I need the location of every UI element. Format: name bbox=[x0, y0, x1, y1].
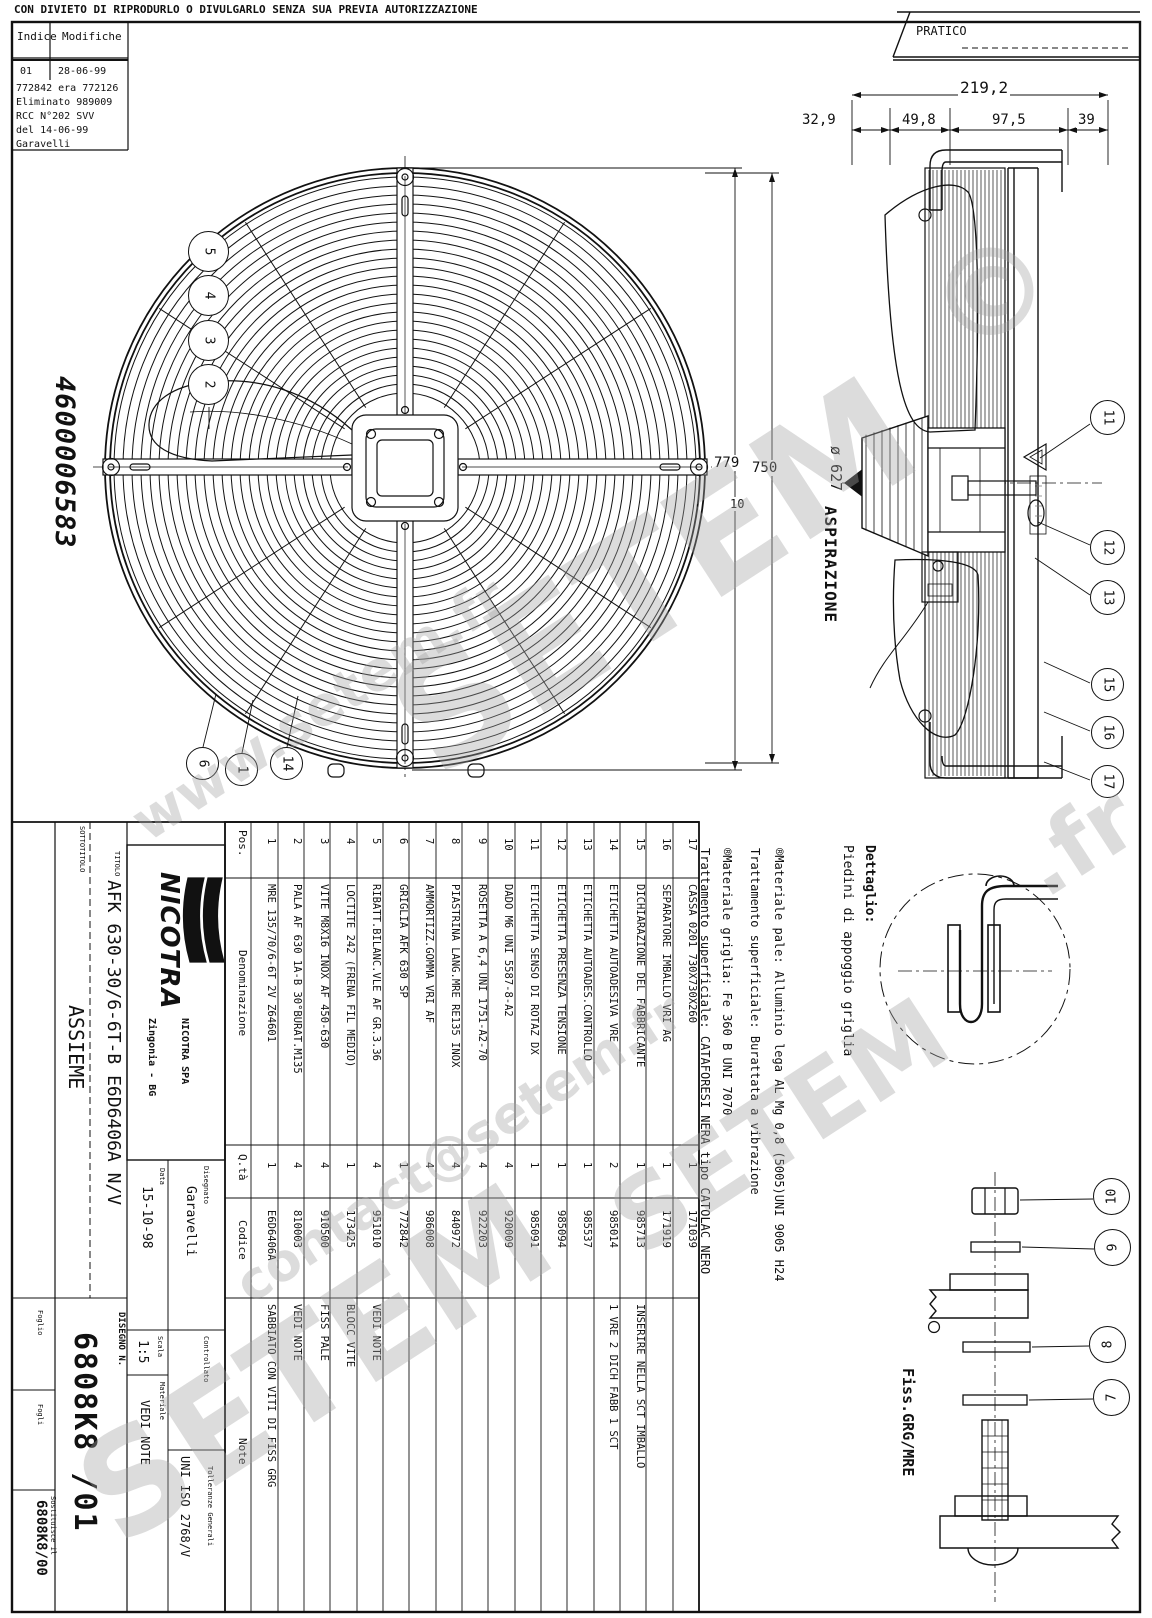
part-qty: 1 bbox=[555, 1162, 567, 1168]
balloon-number: 17 bbox=[1100, 774, 1115, 790]
drawing-number: 4600006583 bbox=[49, 376, 80, 549]
part-pos: 6 bbox=[397, 838, 409, 844]
part-pos: 8 bbox=[449, 838, 461, 844]
part-pos: 5 bbox=[370, 838, 382, 844]
dim-97-5: 97,5 bbox=[990, 112, 1028, 128]
sottotitolo-label: SOTTOTITOLO bbox=[78, 826, 86, 872]
dim-779: 779 bbox=[712, 455, 741, 471]
part-name: DADO M6 UNI 5587-8-A2 bbox=[502, 884, 514, 1017]
balloon-number: 16 bbox=[1100, 725, 1115, 741]
tolleranze-label: Tolleranze Generali bbox=[206, 1466, 214, 1546]
foglio-label: Foglio bbox=[36, 1310, 44, 1335]
part-qty: 2 bbox=[607, 1162, 619, 1168]
fiss-grg-mre-label: Fiss.GRG/MRE bbox=[899, 1368, 917, 1476]
fogli-label: Fogli bbox=[36, 1404, 44, 1425]
revision-line: Eliminato 989009 bbox=[16, 97, 112, 108]
part-code: 985091 bbox=[528, 1210, 540, 1248]
part-name: VITE M8X16 INOX AF 450-630 bbox=[318, 884, 330, 1048]
part-name: AMMORTIZZ.GOMMA VRI AF bbox=[423, 884, 435, 1023]
disegnato-value: Garavelli bbox=[183, 1186, 198, 1256]
dim-49-8: 49,8 bbox=[900, 112, 938, 128]
balloon-16: 16 bbox=[1091, 716, 1124, 749]
balloon-number: 6 bbox=[195, 760, 210, 768]
disclaimer-text: CON DIVIETO DI RIPRODURLO O DIVULGARLO S… bbox=[14, 3, 478, 16]
part-pos: 9 bbox=[476, 838, 488, 844]
part-pos: 11 bbox=[528, 838, 540, 851]
materiale-value: VEDI NOTE bbox=[138, 1400, 152, 1465]
balloon-number: 14 bbox=[279, 756, 294, 772]
revision-date: 28-06-99 bbox=[58, 66, 106, 77]
part-pos: 3 bbox=[318, 838, 330, 844]
sostituisce-label: Sostituisce il bbox=[49, 1496, 57, 1555]
part-name: RIBATT.BILANC.VLE AF GR.3.36 bbox=[370, 884, 382, 1061]
part-code: 985713 bbox=[634, 1210, 646, 1248]
balloon-number: 10 bbox=[1104, 1189, 1119, 1205]
nicotra-logo-text: NICOTRA bbox=[154, 872, 184, 1010]
part-pos: 1 bbox=[265, 838, 277, 844]
part-name: PALA AF 630 1A-B 30°BURAT.M135 bbox=[291, 884, 303, 1074]
balloon-number: 15 bbox=[1100, 677, 1115, 693]
part-name: DICHIARAZIONE DEL FABBRICANTE bbox=[634, 884, 646, 1067]
detail-title-line1: Dettaglio: bbox=[862, 845, 877, 923]
engineering-drawing-sheet: CON DIVIETO DI RIPRODURLO O DIVULGARLO S… bbox=[0, 0, 1152, 1618]
part-pos: 4 bbox=[344, 838, 356, 844]
tolleranze-value: UNI ISO 2768/V bbox=[178, 1456, 192, 1557]
revision-col-modifiche: Modifiche bbox=[62, 30, 122, 43]
material-note-line: Trattamento superficiale: Burattata a vi… bbox=[748, 848, 762, 1195]
balloon-number: 4 bbox=[201, 292, 216, 300]
disegno-n-label: DISEGNO N. bbox=[116, 1312, 126, 1366]
material-note-line: Trattamento superficiale: CATAFORESI NER… bbox=[698, 848, 712, 1274]
part-code: E6D6406A bbox=[265, 1210, 277, 1261]
part-pos: 7 bbox=[423, 838, 435, 844]
dim-750: 750 bbox=[750, 460, 779, 476]
nicotra-swoosh bbox=[183, 878, 224, 962]
balloon-number: 11 bbox=[1100, 410, 1115, 426]
balloon-number: 2 bbox=[201, 381, 216, 389]
part-pos: 13 bbox=[581, 838, 593, 851]
balloon-number: 13 bbox=[1100, 590, 1115, 606]
drawing-line-art bbox=[0, 0, 1152, 1618]
part-code: 810003 bbox=[291, 1210, 303, 1248]
balloon-8: 8 bbox=[1089, 1326, 1126, 1363]
part-qty: 1 bbox=[265, 1162, 277, 1168]
part-qty: 1 bbox=[528, 1162, 540, 1168]
balloon-13: 13 bbox=[1090, 580, 1125, 615]
part-note: SABBIATO CON VITI DI FISS GRG bbox=[265, 1304, 277, 1487]
part-name: CASSA 0201 730X730X260 bbox=[686, 884, 698, 1023]
balloon-number: 9 bbox=[1105, 1244, 1120, 1252]
part-qty: 1 bbox=[344, 1162, 356, 1168]
part-qty: 1 bbox=[686, 1162, 698, 1168]
data-label: Data bbox=[158, 1168, 166, 1185]
dim-10: 10 bbox=[728, 497, 746, 511]
titolo-value: AFK 630-30/6-6T-B E6D6406A N/V bbox=[103, 880, 124, 1205]
balloon-number: 5 bbox=[201, 248, 216, 256]
airflow-label: ASPIRAZIONE bbox=[821, 506, 840, 623]
part-pos: 14 bbox=[607, 838, 619, 851]
balloon-10: 10 bbox=[1093, 1178, 1130, 1215]
balloon-7: 7 bbox=[1093, 1379, 1130, 1416]
part-name: ETICHETTA AUTOADES.CONTROLLO bbox=[581, 884, 593, 1061]
revision-line: del 14-06-99 bbox=[16, 125, 88, 136]
part-code: 171039 bbox=[686, 1210, 698, 1248]
balloon-2: 2 bbox=[188, 364, 229, 405]
part-pos: 16 bbox=[660, 838, 672, 851]
side-view bbox=[842, 150, 1102, 778]
table-header-qty: Q.tà bbox=[236, 1154, 249, 1181]
part-name: ETICHETTA PRESENZA TENSIONE bbox=[555, 884, 567, 1055]
material-note-line: ®Materiale griglia: Fe 360 B UNI 7070 bbox=[720, 848, 734, 1115]
balloon-number: 3 bbox=[201, 337, 216, 345]
sostituisce-value: 6808K8/00 bbox=[33, 1500, 49, 1576]
part-code: 840972 bbox=[449, 1210, 461, 1248]
part-qty: 4 bbox=[449, 1162, 461, 1168]
part-code: 173425 bbox=[344, 1210, 356, 1248]
detail-title-line2: Piedini di appoggio griglia bbox=[840, 845, 855, 1056]
part-code: 986008 bbox=[423, 1210, 435, 1248]
part-qty: 4 bbox=[423, 1162, 435, 1168]
part-qty: 4 bbox=[318, 1162, 330, 1168]
dim-32-9: 32,9 bbox=[800, 112, 838, 128]
part-code: 772842 bbox=[397, 1210, 409, 1248]
revision-line: 772842 era 772126 bbox=[16, 83, 118, 94]
part-name: MRE 135/70/6-6T 2V Z64601 bbox=[265, 884, 277, 1042]
dim-219-2: 219,2 bbox=[958, 78, 1010, 97]
table-header-den: Denominazione bbox=[236, 950, 249, 1036]
part-qty: 4 bbox=[291, 1162, 303, 1168]
part-note: INSERIRE NELLA SCT IMBALLO bbox=[634, 1304, 646, 1468]
material-note-line: ®Materiale pale: Alluminio lega AL Mg 0,… bbox=[772, 848, 786, 1281]
part-pos: 17 bbox=[686, 838, 698, 851]
part-note: 1 VRE 2 DICH FABB 1 SCT bbox=[607, 1304, 619, 1449]
part-note: VEDI NOTE bbox=[370, 1304, 382, 1361]
balloon-11: 11 bbox=[1090, 400, 1125, 435]
balloon-number: 8 bbox=[1100, 1341, 1115, 1349]
balloon-number: 7 bbox=[1104, 1394, 1119, 1402]
balloon-1: 1 bbox=[225, 753, 258, 786]
part-name: SEPARATORE IMBALLO VRI AG bbox=[660, 884, 672, 1042]
part-qty: 1 bbox=[581, 1162, 593, 1168]
balloon-number: 12 bbox=[1100, 540, 1115, 556]
balloon-3: 3 bbox=[188, 320, 229, 361]
part-qty: 1 bbox=[397, 1162, 409, 1168]
part-name: GRIGLIA AFK 630 SP bbox=[397, 884, 409, 998]
balloon-17: 17 bbox=[1091, 765, 1124, 798]
company-line1: NICOTRA SPA bbox=[179, 1018, 190, 1084]
scala-value: 1:5 bbox=[135, 1340, 150, 1363]
balloon-12: 12 bbox=[1090, 530, 1125, 565]
data-value: 15-10-98 bbox=[139, 1186, 154, 1249]
part-pos: 12 bbox=[555, 838, 567, 851]
balloon-6: 6 bbox=[186, 747, 219, 780]
part-code: 910500 bbox=[318, 1210, 330, 1248]
part-code: 951010 bbox=[370, 1210, 382, 1248]
sottotitolo-value: ASSIEME bbox=[64, 1005, 88, 1089]
part-pos: 15 bbox=[634, 838, 646, 851]
balloon-4: 4 bbox=[188, 275, 229, 316]
part-note: FISS PALE bbox=[318, 1304, 330, 1361]
dim-39: 39 bbox=[1076, 112, 1097, 128]
pratico-label: PRATICO bbox=[916, 24, 967, 38]
part-pos: 2 bbox=[291, 838, 303, 844]
dim-diameter-627: ø 627 bbox=[827, 446, 845, 491]
revision-line: RCC N°202 SVV bbox=[16, 111, 94, 122]
balloon-15: 15 bbox=[1091, 668, 1124, 701]
part-qty: 4 bbox=[476, 1162, 488, 1168]
part-name: PIASTRINA LANG.MRE RE135 INOX bbox=[449, 884, 461, 1067]
company-line2: Zingonia - BG bbox=[146, 1018, 157, 1096]
part-name: LOCTITE 242 (FRENA FIL MEDIO) bbox=[344, 884, 356, 1067]
revision-index: 01 bbox=[20, 66, 32, 77]
part-code: 920009 bbox=[502, 1210, 514, 1248]
balloon-14: 14 bbox=[270, 747, 303, 780]
part-qty: 4 bbox=[502, 1162, 514, 1168]
balloon-number: 1 bbox=[234, 766, 249, 774]
balloon-5: 5 bbox=[188, 231, 229, 272]
part-code: 985094 bbox=[555, 1210, 567, 1248]
part-qty: 1 bbox=[660, 1162, 672, 1168]
part-name: ETICHETTA SENSO DI ROTAZ DX bbox=[528, 884, 540, 1055]
part-code: 985537 bbox=[581, 1210, 593, 1248]
part-name: ROSETTA A 6,4 UNI 1751-A2-70 bbox=[476, 884, 488, 1061]
fastener-exploded bbox=[929, 1172, 1121, 1602]
scala-label: Scala bbox=[156, 1336, 164, 1357]
detail-piedini bbox=[880, 874, 1070, 1064]
sheet-frame bbox=[12, 22, 1140, 1612]
revision-col-indice: Indice bbox=[17, 30, 57, 43]
table-header-code: Codice bbox=[236, 1220, 249, 1260]
disegno-n-value: 6808K8 /01 bbox=[67, 1332, 102, 1533]
part-code: 171919 bbox=[660, 1210, 672, 1248]
table-header-note: Note bbox=[236, 1438, 249, 1465]
part-note: BLOCC VITE bbox=[344, 1304, 356, 1367]
disegnato-label: Disegnato bbox=[202, 1166, 210, 1204]
table-header-pos: Pos. bbox=[236, 830, 249, 857]
part-qty: 4 bbox=[370, 1162, 382, 1168]
part-qty: 1 bbox=[634, 1162, 646, 1168]
part-code: 922203 bbox=[476, 1210, 488, 1248]
materiale-label: Materiale bbox=[158, 1382, 166, 1420]
controllato-label: Controllato bbox=[202, 1336, 210, 1382]
part-note: VEDI NOTE bbox=[291, 1304, 303, 1361]
part-name: ETICHETTA AUTOADESIVA VRE bbox=[607, 884, 619, 1042]
balloon-9: 9 bbox=[1094, 1229, 1131, 1266]
revision-line: Garavelli bbox=[16, 139, 70, 150]
part-code: 985014 bbox=[607, 1210, 619, 1248]
part-pos: 10 bbox=[502, 838, 514, 851]
titolo-label: TITOLO bbox=[113, 851, 121, 876]
